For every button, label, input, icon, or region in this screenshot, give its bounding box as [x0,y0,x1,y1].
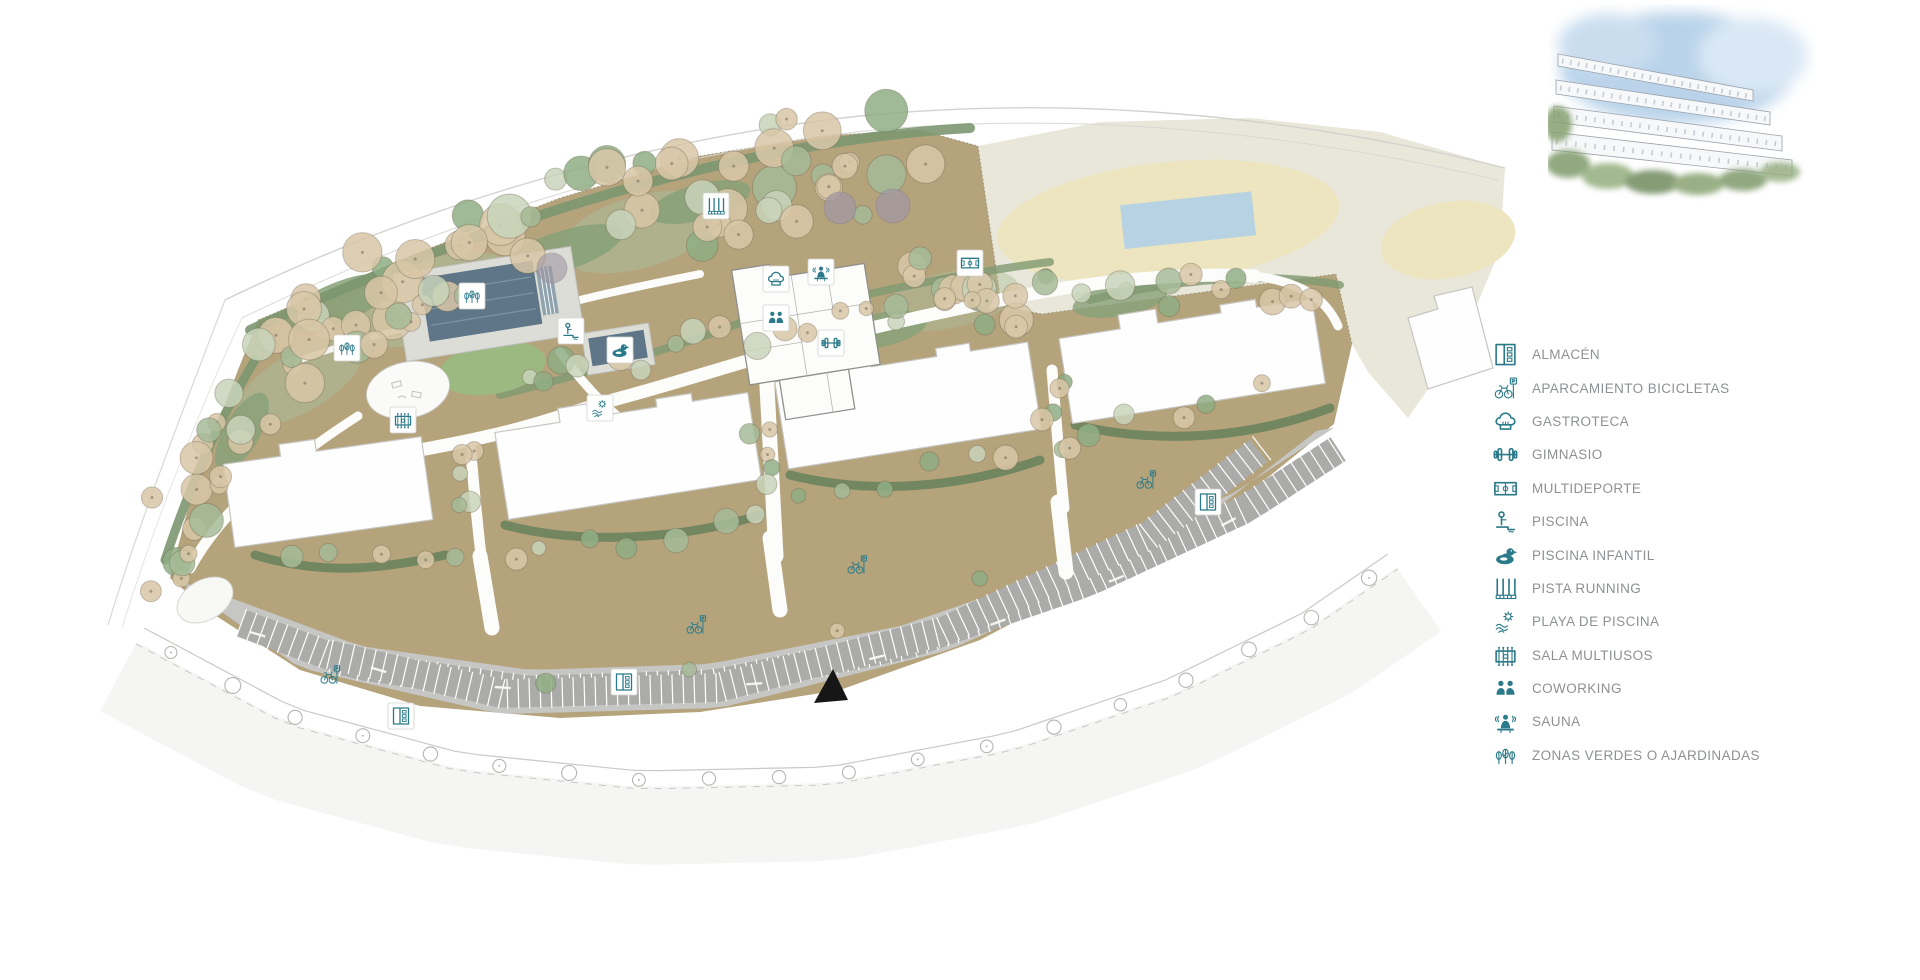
zonas-verdes-icon [1492,742,1519,769]
tree [1226,268,1246,288]
tree [545,168,567,190]
tree [418,275,449,306]
tree [1156,268,1182,294]
tree [242,328,275,361]
tree [714,508,740,534]
tree [532,541,546,555]
street-tree [842,766,855,779]
legend-label: GIMNASIO [1532,447,1603,462]
almacen-icon [1492,341,1519,368]
street-tree [288,710,302,724]
legend-item-zonas-verdes: ZONAS VERDES O AJARDINADAS [1492,739,1760,772]
map-marker-multideporte [957,250,983,276]
legend-item-sala-multiusos: SALA MULTIUSOS [1492,639,1760,672]
legend-label: GASTROTECA [1532,414,1629,429]
tree [756,474,777,495]
legend-item-piscina-infantil: PISCINA INFANTIL [1492,538,1760,571]
map-marker-almacen [611,669,637,695]
legend-label: SALA MULTIUSOS [1532,648,1653,663]
map-marker-almacen [1195,489,1221,515]
street-tree [1114,699,1126,711]
sala-multiusos-icon [1492,642,1519,669]
tree [1114,404,1135,425]
legend-label: MULTIDEPORTE [1532,481,1641,496]
tree [746,505,765,524]
legend-item-almacen: ALMACÉN [1492,338,1760,371]
legend-label: APARCAMIENTO BICICLETAS [1532,381,1730,396]
legend-label: PISTA RUNNING [1532,581,1641,596]
tree [1032,270,1057,295]
tree [781,146,811,176]
street-tree [772,770,785,783]
map-marker-almacen [388,703,414,729]
tree [920,452,939,471]
tree [197,418,221,442]
multideporte-icon [1492,475,1519,502]
street-tree [1304,610,1318,624]
map-marker-piscina-infantil [607,337,633,363]
legend-label: COWORKING [1532,681,1622,696]
tree [566,354,589,377]
street-tree [225,678,241,694]
legend-label: PISCINA INFANTIL [1532,548,1655,563]
map-marker-coworking [763,305,789,331]
map-marker-zonas-verdes [459,283,485,309]
coworking-icon [1492,675,1519,702]
tree [867,155,906,194]
map-marker-sauna [808,259,834,285]
tree [281,545,303,567]
masterplan-page: ALMACÉNAPARCAMIENTO BICICLETASGASTROTECA… [0,0,1920,980]
building-render-image [1548,4,1816,202]
map-marker-gastroteca [763,266,789,292]
tree [680,318,706,344]
tree [215,379,243,407]
piscina-infantil-icon [1492,542,1519,569]
tree [744,332,771,359]
street-tree [562,765,577,780]
legend-item-pista-running: PISTA RUNNING [1492,572,1760,605]
tree [884,294,908,318]
legend-label: SAUNA [1532,714,1581,729]
street-tree [1047,720,1061,734]
gastroteca-icon [1492,408,1519,435]
tree [1077,424,1100,447]
legend-item-playa-de-piscina: PLAYA DE PISCINA [1492,605,1760,638]
piscina-icon [1492,508,1519,535]
legend-item-piscina: PISCINA [1492,505,1760,538]
tree [972,571,987,586]
tree [581,530,599,548]
street-tree [1242,642,1257,657]
map-marker-playa-piscina [587,395,613,421]
tree [452,466,467,481]
street-tree [702,772,715,785]
map-marker-pista-running [703,193,729,219]
legend-item-sauna: SAUNA [1492,705,1760,738]
tree [664,528,689,553]
tree [319,544,337,562]
pista-running-icon [1492,575,1519,602]
map-marker-sala-multiusos [390,407,416,433]
tree [791,488,806,503]
legend-item-aparcamiento-bicicletas: APARCAMIENTO BICICLETAS [1492,371,1760,404]
tree [1158,296,1179,317]
tree [451,497,466,512]
tree [226,415,255,444]
legend: ALMACÉNAPARCAMIENTO BICICLETASGASTROTECA… [1492,338,1760,772]
tree [877,481,893,497]
legend-item-multideporte: MULTIDEPORTE [1492,472,1760,505]
tree [865,89,908,132]
tree [909,247,932,270]
tree [969,445,986,462]
map-marker-piscina [558,318,584,344]
tree [974,314,995,335]
tree [446,548,464,566]
tree [534,372,553,391]
street-tree [1179,673,1193,687]
map-marker-gimnasio [818,330,844,356]
legend-item-gastroteca: GASTROTECA [1492,405,1760,438]
tree [521,207,541,227]
tree [1105,271,1135,301]
legend-label: PISCINA [1532,514,1589,529]
legend-item-gimnasio: GIMNASIO [1492,438,1760,471]
tree [756,197,782,223]
legend-item-coworking: COWORKING [1492,672,1760,705]
tree [1197,395,1215,413]
tree [616,538,637,559]
legend-label: ZONAS VERDES O AJARDINADAS [1532,748,1760,763]
tree [536,673,556,693]
street-tree [423,747,437,761]
tree [189,503,223,537]
playa-de-piscina-icon [1492,608,1519,635]
map-marker-zonas-verdes [334,335,360,361]
tree [385,303,411,329]
sauna-icon [1492,708,1519,735]
tree [606,210,636,240]
tree [739,424,759,444]
tree [834,483,850,499]
legend-label: PLAYA DE PISCINA [1532,614,1659,629]
tree [1072,284,1091,303]
gimnasio-icon [1492,441,1519,468]
tree [682,662,697,677]
legend-label: ALMACÉN [1532,347,1600,362]
aparcamiento-bicicletas-icon [1492,375,1519,402]
tree [631,360,651,380]
